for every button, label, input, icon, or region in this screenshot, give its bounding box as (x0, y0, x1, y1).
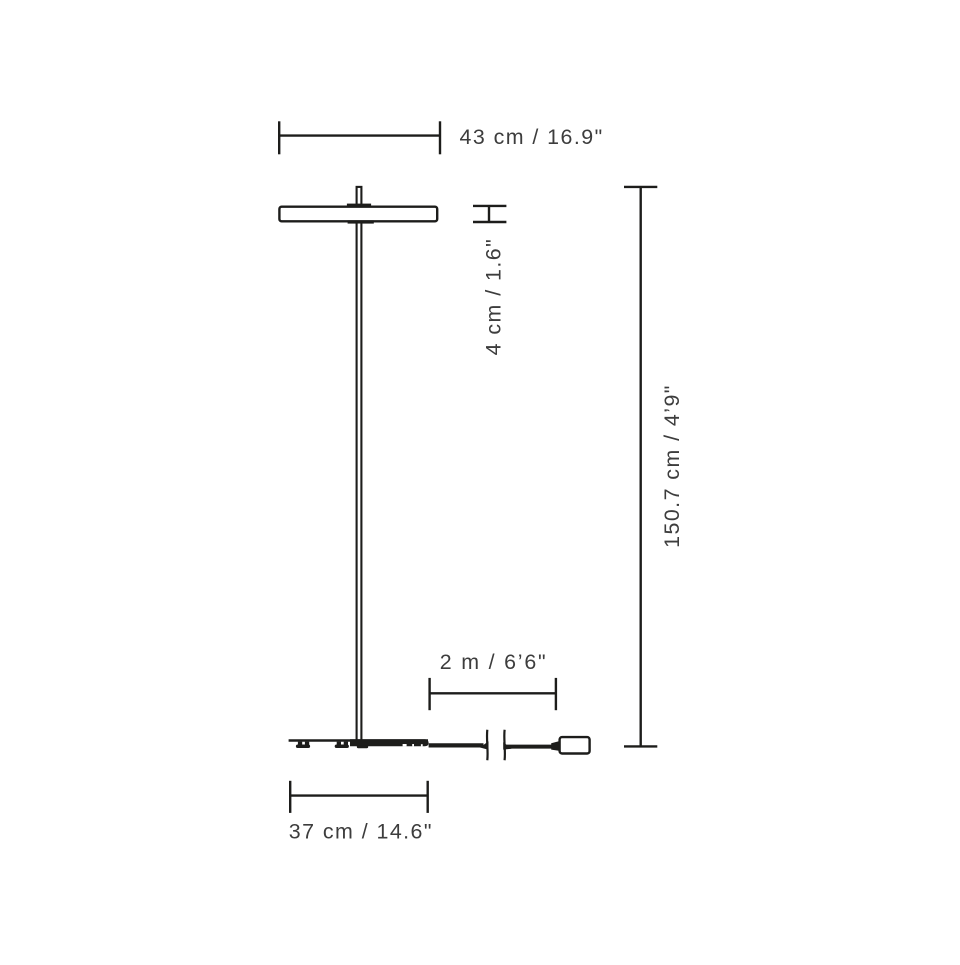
svg-text:2 m / 6’6": 2 m / 6’6" (440, 650, 548, 674)
svg-text:150.7 cm / 4’9": 150.7 cm / 4’9" (660, 384, 684, 548)
svg-text:43 cm / 16.9": 43 cm / 16.9" (460, 125, 604, 149)
svg-text:4 cm / 1.6": 4 cm / 1.6" (482, 238, 506, 355)
svg-text:37 cm / 14.6": 37 cm / 14.6" (289, 820, 433, 844)
